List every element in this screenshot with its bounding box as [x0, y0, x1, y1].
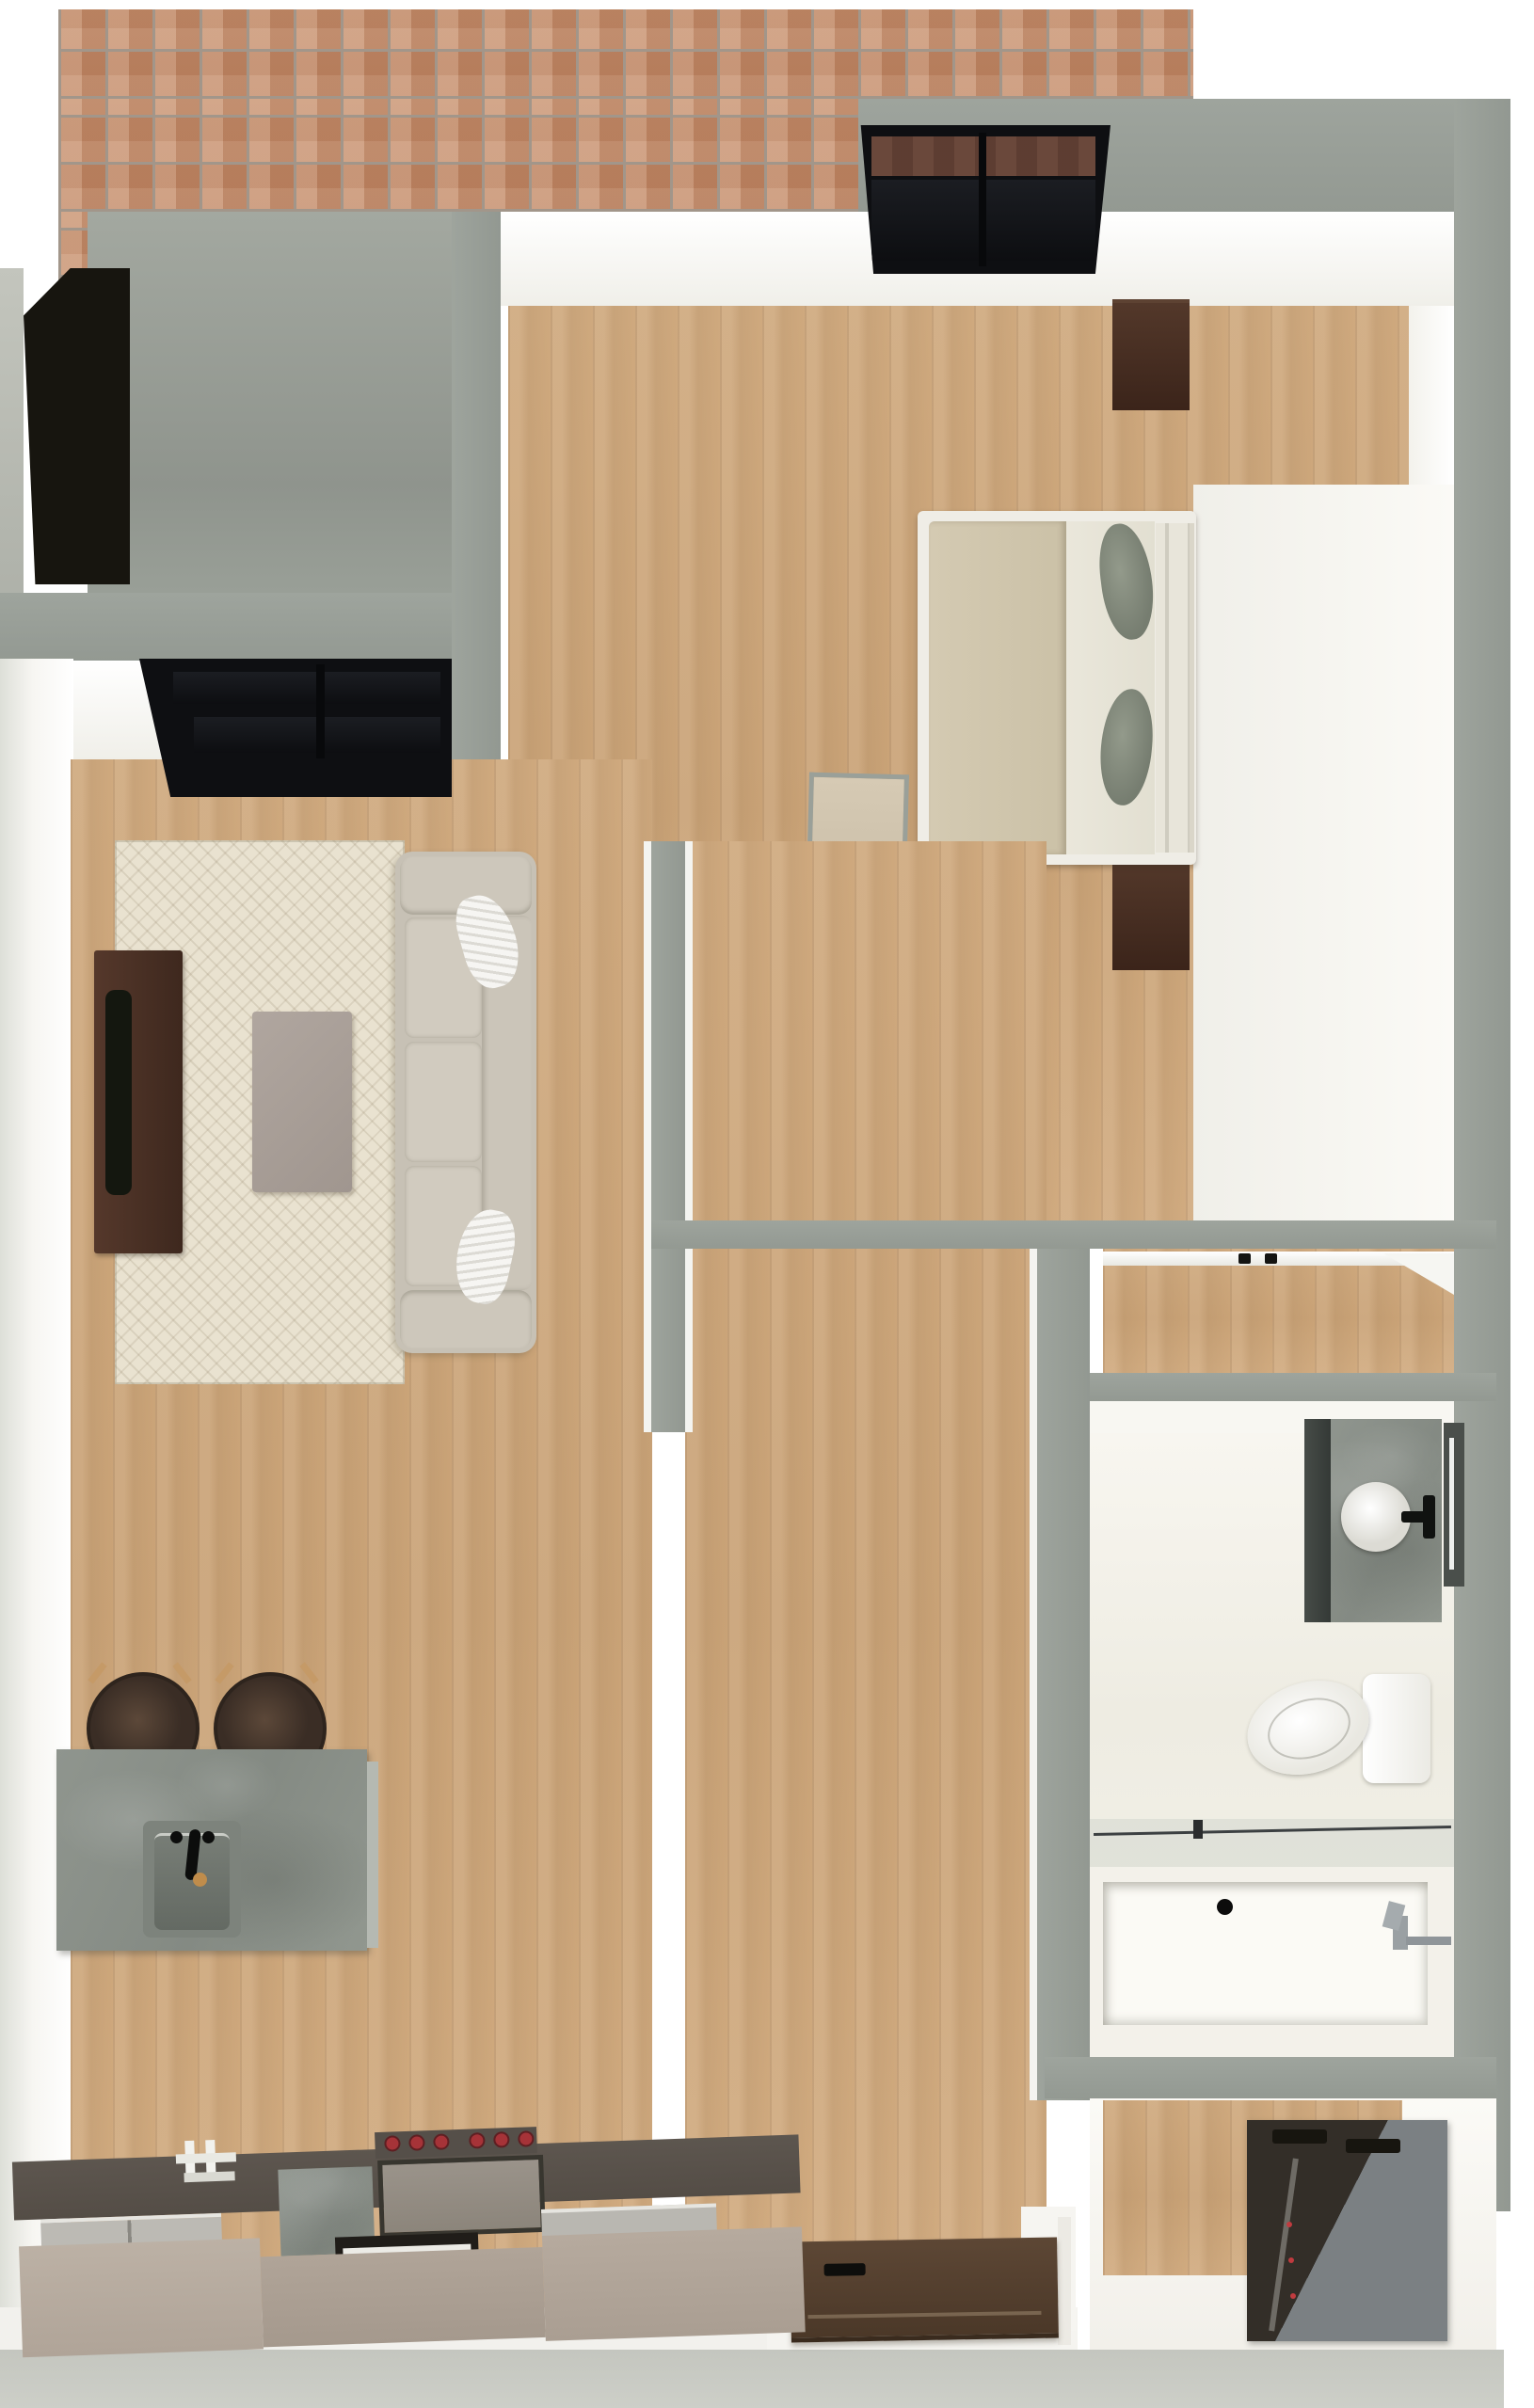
- floor-plan-scene: [0, 0, 1534, 2408]
- kitchen-faucet-base: [184, 2171, 234, 2182]
- patio-brick-pavers-top: [58, 9, 1193, 99]
- washer-dryer-unit: [1247, 2120, 1447, 2341]
- cabinet-base-right: [542, 2226, 806, 2341]
- entry-door-leaf: [790, 2238, 1059, 2343]
- cabinet-base-mid: [261, 2247, 546, 2347]
- bedroom-window-frame: [858, 125, 1111, 274]
- wall-partial-white-left: [644, 841, 651, 1432]
- bedroom-right-wall-face-b: [1193, 485, 1454, 1221]
- washer-indicator-2: [1288, 2257, 1294, 2263]
- bed: [918, 511, 1196, 865]
- vanity-cabinet-front: [1304, 1419, 1331, 1622]
- wall-bathroom-bottom: [1045, 2057, 1496, 2098]
- entry-door-frame-sliver: [1058, 2217, 1071, 2345]
- entry-door-handle: [824, 2263, 866, 2276]
- mirror-light-strip: [1449, 1438, 1454, 1570]
- wall-living-top: [0, 593, 452, 661]
- tv-console: [94, 950, 183, 1253]
- bottom-right-corner: [1504, 2350, 1534, 2408]
- wall-closet-bathroom: [1045, 1373, 1496, 1401]
- patio-step-dark: [24, 268, 130, 584]
- wall-bathroom-left: [1037, 1249, 1090, 2100]
- sofa-seat-cushion-2: [405, 1042, 482, 1162]
- nightstand-bottom: [1112, 859, 1190, 970]
- tv-screen: [105, 990, 132, 1195]
- bathtub-basin: [1103, 1882, 1428, 2025]
- living-window-frame: [139, 659, 452, 797]
- wall-bedroom-living: [452, 212, 501, 842]
- washer-indicator-1: [1286, 2222, 1292, 2227]
- bed-headboard: [1156, 523, 1194, 853]
- bathtub: [1090, 1867, 1454, 2057]
- bottom-gray-band: [0, 2350, 1504, 2408]
- coffee-table: [252, 1012, 352, 1192]
- washer-lid-slot-1: [1272, 2129, 1327, 2144]
- closet-hanger-1: [1238, 1253, 1251, 1264]
- nightstand-top: [1112, 299, 1190, 410]
- bedroom-window-mullion: [979, 133, 986, 266]
- washer-lid-slot-2: [1346, 2139, 1400, 2153]
- washer-indicator-3: [1290, 2293, 1296, 2299]
- bathtub-drain: [1217, 1899, 1233, 1915]
- closet-floor: [1103, 1249, 1454, 1375]
- wall-bathroom-left-face: [1030, 1249, 1037, 2100]
- vanity-vessel-sink: [1341, 1482, 1411, 1552]
- tub-glass-handle: [1193, 1820, 1203, 1839]
- patio-side-strip: [0, 268, 24, 602]
- closet-hanger-2: [1265, 1253, 1277, 1264]
- kitchen-island-side-face: [367, 1762, 378, 1948]
- island-sink-drain: [193, 1873, 207, 1887]
- toilet-tank: [1363, 1674, 1430, 1783]
- hallway-floor: [685, 841, 1047, 2258]
- wall-partial-hallway: [651, 841, 685, 1432]
- bed-duvet: [929, 521, 1066, 854]
- oven-window: [377, 2155, 546, 2238]
- bathroom-mirror: [1444, 1423, 1464, 1587]
- sofa: [395, 852, 536, 1353]
- living-window-glass-a: [173, 672, 440, 704]
- patio-brick-pavers-mid: [58, 99, 858, 212]
- island-faucet-hole-left: [170, 1831, 183, 1843]
- vanity-faucet-spout: [1401, 1511, 1426, 1523]
- washer-door-seam: [1269, 2158, 1299, 2331]
- wall-partial-white-right: [685, 841, 693, 1432]
- entry-door-bottom-rail: [807, 2311, 1041, 2319]
- patio-concrete-pad: [88, 212, 452, 602]
- living-window-mullion: [316, 664, 325, 758]
- wall-bedroom-bottom: [651, 1220, 1496, 1249]
- shower-arm: [1406, 1937, 1451, 1945]
- island-faucet-hole-right: [202, 1831, 215, 1843]
- sofa-armrest-bottom: [400, 1290, 532, 1348]
- wall-left-inner-face: [0, 659, 73, 2315]
- kitchen-counter-run: [0, 2110, 806, 2363]
- wall-right-exterior: [1454, 99, 1510, 2211]
- cabinet-base-left: [19, 2238, 264, 2357]
